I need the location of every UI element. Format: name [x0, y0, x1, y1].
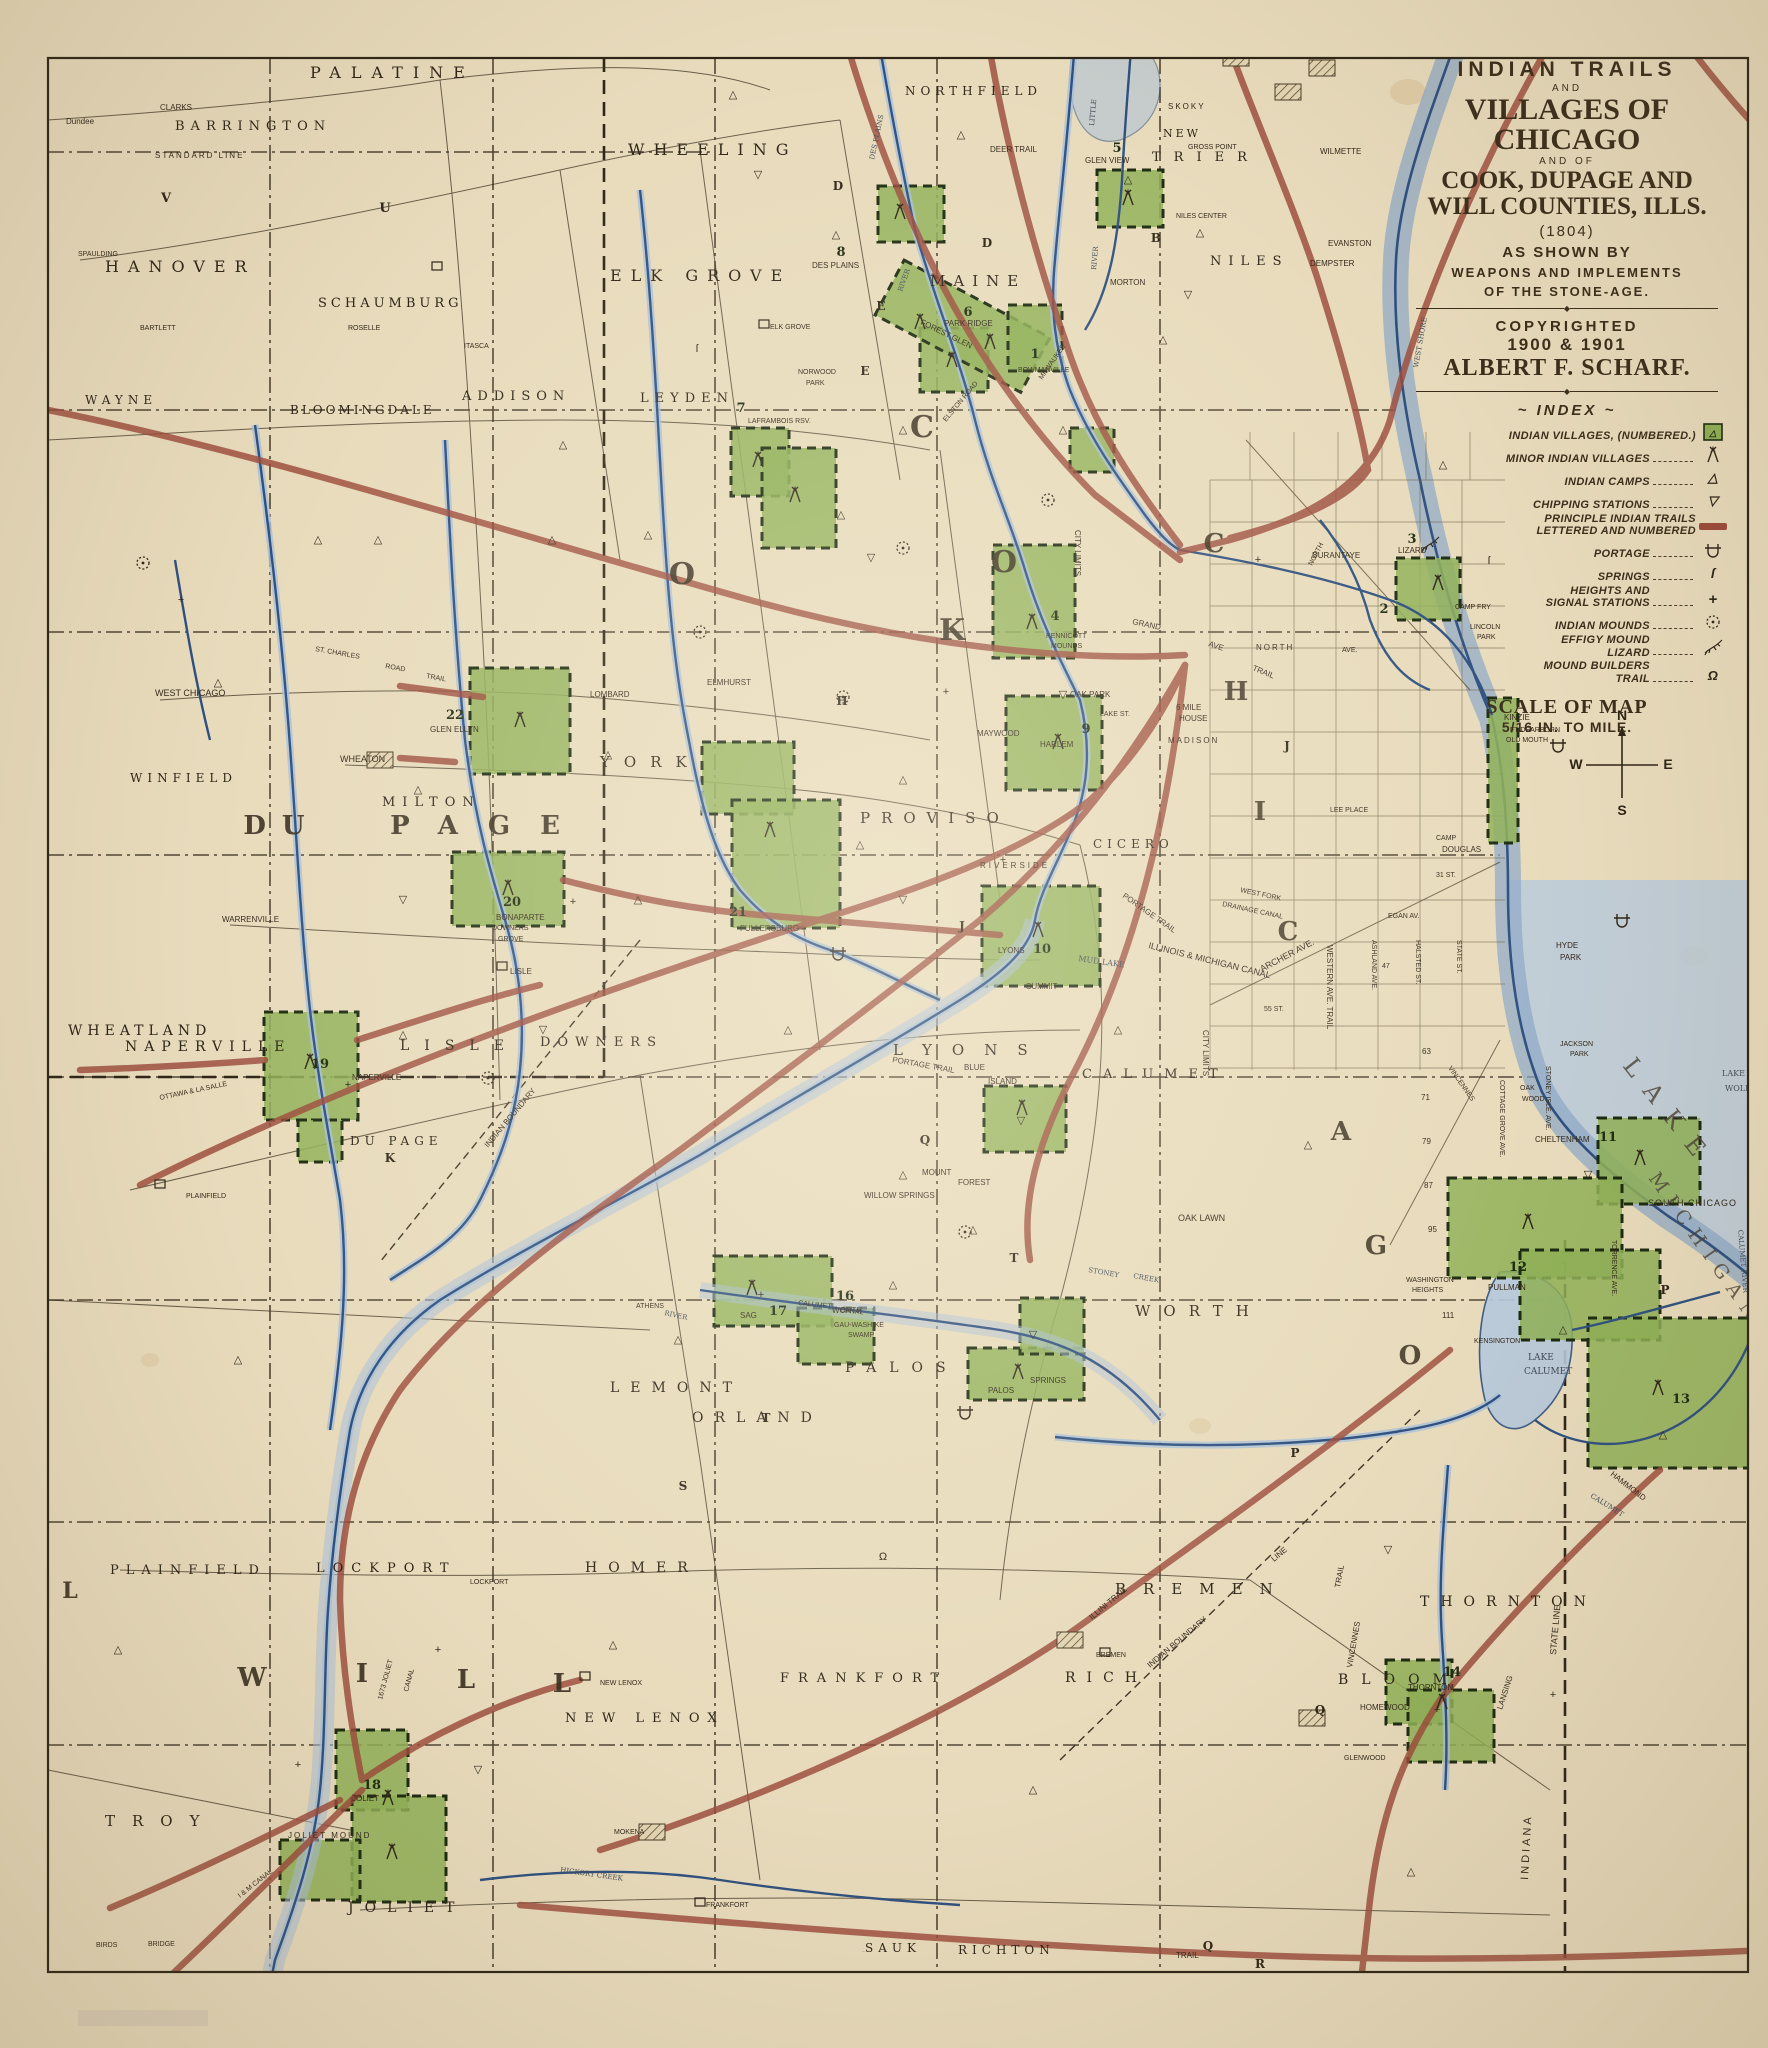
index-leader [1653, 484, 1693, 485]
symbol-h-icon: + [1255, 554, 1261, 566]
index-item-label: MINOR INDIAN VILLAGES [1506, 453, 1650, 466]
map-label: RICHTON [958, 1943, 1055, 1957]
map-label: 79 [1422, 1137, 1431, 1146]
index-item: MOUND BUILDERSTRAILΩ [1404, 660, 1730, 685]
map-label: LOMBARD [590, 690, 630, 699]
map-label: LISLE [400, 1038, 519, 1054]
map-label: L [553, 1669, 571, 1699]
map-label: NAPERVILLE [352, 1073, 401, 1082]
map-label: NEW LENOX [600, 1680, 642, 1687]
map-label: L [457, 1665, 475, 1695]
map-label: FULLERSBURG [740, 924, 799, 933]
index-item-label: PORTAGE [1594, 548, 1650, 561]
index-symbol: Ω [1696, 664, 1730, 686]
map-label: STANDARD LINE [155, 151, 244, 160]
map-label: PROVISO [860, 809, 1010, 827]
index-item-label: MOUND BUILDERSTRAIL [1544, 660, 1650, 685]
map-label: O [669, 557, 695, 592]
map-label: STATE LINE [1548, 1604, 1562, 1655]
map-label: S [679, 1479, 688, 1493]
map-label: 1 [1030, 347, 1039, 362]
map-label: OAK LAWN [1178, 1213, 1225, 1223]
map-label: WHEELING [628, 140, 797, 159]
map-label: GROVE [498, 936, 524, 943]
map-label: LOCKPORT [316, 1561, 457, 1576]
map-label: 22 [446, 708, 464, 723]
map-label: 18 [363, 1778, 381, 1793]
map-label: 17 [769, 1304, 787, 1319]
symbol-p-icon: ▽ [1059, 689, 1068, 701]
indian-village-glen-ellyn-22 [470, 668, 570, 774]
map-label: ELMHURST [707, 678, 751, 687]
map-label: Dundee [66, 117, 95, 126]
village-area [470, 668, 570, 774]
map-label: LEE PLACE [1330, 807, 1368, 814]
skokie-marsh [1070, 34, 1160, 142]
map-label: BREMEN [1115, 1580, 1290, 1598]
map-label: LANSING [1495, 1674, 1514, 1710]
scale-title: SCALE OF MAP [1398, 696, 1736, 719]
map-label: LINE [1270, 1545, 1289, 1563]
village-area [352, 1796, 446, 1902]
index-item: EFFIGY MOUNDLIZARD [1404, 634, 1730, 659]
symbol-p-icon: ▽ [1384, 1544, 1393, 1556]
symbol-c-icon: △ [644, 529, 653, 541]
symbol-m-icon [1042, 494, 1054, 506]
map-label: 31 ST. [1436, 872, 1456, 879]
map-label: OTTAWA & LA SALLE [159, 1081, 228, 1102]
map-label: BLOOMINGDALE [290, 403, 435, 417]
index-symbol [1696, 539, 1730, 561]
map-label: ROSELLE [348, 325, 381, 332]
symbol-c-icon: △ [1559, 1324, 1568, 1336]
map-label: PAGE [390, 811, 590, 841]
symbol-h-icon: + [178, 594, 184, 606]
map-label: WILMETTE [1320, 147, 1361, 156]
map-label: PLAINFIELD [110, 1563, 266, 1578]
map-label: A [1330, 1117, 1352, 1147]
index-item: CHIPPING STATIONS▽ [1404, 490, 1730, 512]
map-label: SWAMP [848, 1332, 875, 1339]
symbol-p-icon: ▽ [474, 1764, 483, 1776]
symbol-s-icon: ſ [696, 343, 699, 355]
map-label: BARRINGTON [175, 119, 331, 134]
map-label: TRAIL [426, 673, 447, 683]
map-label: LYONS [998, 946, 1025, 955]
map-label: OLD MOUTH [1506, 737, 1548, 744]
map-label: 19 [311, 1057, 329, 1072]
symbol-c-icon: △ [1114, 1024, 1123, 1036]
map-label: HARLEM [1040, 740, 1074, 749]
map-label: TROY [105, 1812, 217, 1830]
map-label: E [876, 299, 885, 313]
map-label: D [982, 236, 992, 250]
symbol-c-icon: △ [1124, 174, 1133, 186]
map-label: FRANKFORT [706, 1902, 749, 1909]
symbol-c-icon: △ [957, 129, 966, 141]
map-label: GROSS POINT [1188, 144, 1237, 151]
map-label: ST. CHARLES [315, 646, 361, 661]
map-label: HOUSE [1179, 714, 1207, 723]
chip-icon: ▽ [1708, 493, 1721, 508]
copyright-line: COPYRIGHTED [1398, 318, 1736, 335]
map-label: LAKE ST. [1100, 711, 1130, 718]
map-label: CAMP [1436, 835, 1457, 842]
map-label: MAINE [930, 272, 1026, 290]
map-label: C [1278, 917, 1299, 947]
map-label: WHEATLAND [68, 1023, 211, 1039]
map-label: MOUNT [922, 1168, 951, 1177]
map-label: BREMEN [1096, 1652, 1126, 1659]
map-label: KENSINGTON [1474, 1338, 1520, 1345]
map-label: CITY LIMITS [1073, 530, 1082, 576]
title-block: INDIAN TRAILS AND VILLAGES OF CHICAGO AN… [1398, 58, 1736, 735]
symbol-p-icon: ▽ [899, 894, 908, 906]
symbol-c-icon: △ [729, 89, 738, 101]
map-label: 10 [1033, 942, 1051, 957]
map-label: RICH [1065, 1670, 1148, 1686]
map-label: PULLMAN [1488, 1283, 1526, 1292]
symbol-p-icon: ▽ [1584, 1169, 1593, 1181]
map-label: CALUMET [1524, 1367, 1572, 1377]
symbol-c-icon: △ [609, 1639, 618, 1651]
symbol-c-icon: △ [1196, 227, 1205, 239]
map-label: BARTLETT [140, 325, 176, 332]
map-label: DEMPSTER [1310, 259, 1355, 268]
map-label: MOUNDS [1051, 643, 1082, 650]
symbol-c-icon: △ [559, 439, 568, 451]
map-label: ASHLAND AVE. [1370, 940, 1377, 990]
map-label: JOLIET [352, 1794, 379, 1803]
map-label: JOLIET MOUND [288, 1831, 371, 1840]
index-symbol: ▽ [1696, 490, 1730, 512]
map-label: STONEY ISLE. AVE. [1544, 1066, 1551, 1131]
map-label: CANAL [403, 1668, 416, 1692]
symbol-m-icon [137, 557, 149, 569]
index-symbol [1696, 611, 1730, 633]
map-label: INDIANA [1519, 1814, 1534, 1880]
index-leader [1653, 605, 1693, 606]
map-label: LAFRAMBOIS RSV. [748, 418, 811, 425]
index-symbol: △ [1696, 421, 1730, 443]
divider: ◆ [1416, 387, 1718, 396]
map-label: SKOKY [1168, 102, 1206, 111]
map-label: HANOVER [105, 257, 256, 276]
map-label: 55 ST. [1264, 1006, 1284, 1013]
map-label: JACKSON [1560, 1041, 1593, 1048]
map-label: LYONS [893, 1041, 1048, 1059]
map-label: NILES [1210, 254, 1289, 269]
symbol-c-icon: △ [1029, 1784, 1038, 1796]
map-label: ISLAND [988, 1077, 1017, 1086]
map-label: NORWOOD [798, 369, 836, 376]
index-symbol: + [1696, 588, 1730, 610]
index-item: MINOR INDIAN VILLAGES [1404, 444, 1730, 466]
map-label: COTTAGE GROVE AVE. [1498, 1080, 1505, 1158]
index-item-label: SPRINGS [1598, 571, 1650, 584]
symbol-o-icon: Ω [879, 1551, 887, 1563]
symbol-c-icon: △ [969, 1224, 978, 1236]
symbol-c-icon: △ [889, 1279, 898, 1291]
map-label: 2 [1379, 602, 1388, 617]
map-label: Q [1203, 1939, 1213, 1953]
symbol-h-icon: + [943, 686, 949, 698]
map-label: DU PAGE [350, 1134, 443, 1148]
map-label: NEW [1163, 127, 1201, 140]
symbol-c-icon: △ [1659, 1429, 1668, 1441]
map-label: EVANSTON [1328, 239, 1371, 248]
map-label: W [236, 1663, 267, 1693]
index-legend: INDIAN VILLAGES, (NUMBERED.)△MINOR INDIA… [1398, 421, 1736, 686]
map-label: PARK RIDGE [944, 319, 993, 328]
map-label: 5 [1112, 141, 1121, 156]
map-label: ATHENS [636, 1303, 664, 1310]
map-label: WOOD [1522, 1096, 1545, 1103]
map-label: DU [243, 811, 320, 841]
map-label: CREEK [1133, 1272, 1161, 1285]
trailbar-icon [1699, 523, 1727, 530]
map-label: BIRDS [96, 1942, 118, 1949]
map-label: ELK GROVE [610, 266, 791, 285]
symbol-c-icon: △ [234, 1354, 243, 1366]
map-label: OAK PARK [1070, 690, 1111, 699]
symbol-c-icon: △ [899, 1169, 908, 1181]
map-label: LAKE [1722, 1069, 1745, 1078]
map-label: C [910, 410, 934, 445]
symbol-q-icon [957, 1406, 973, 1419]
map-label: H [836, 694, 847, 708]
map-label: I [1254, 797, 1266, 827]
map-label: MOKENA [614, 1829, 645, 1836]
map-page: △△△△△△△△△△△△△△△△△△△△△△△△△△△△△△△△△△△△▽▽▽▽… [0, 0, 1768, 2048]
map-label: AVE. [1342, 647, 1357, 654]
scale-value: 5/16 IN. TO MILE. [1398, 719, 1736, 735]
map-label: 20 [503, 895, 521, 910]
map-label: K [939, 613, 966, 648]
map-label: WARRENVILLE [222, 915, 279, 924]
map-label: WAYNE [85, 393, 157, 407]
index-leader [1653, 681, 1693, 682]
symbol-h-icon: + [345, 1079, 351, 1091]
symbol-c-icon: △ [856, 839, 865, 851]
map-label: MORTON [1110, 278, 1145, 287]
map-label: GAU-WASH-KE [834, 1322, 884, 1329]
map-label: MADISON [1168, 736, 1219, 745]
map-label: WINFIELD [130, 771, 237, 785]
map-label: DOUGLAS [1442, 845, 1481, 854]
map-label: WORTH [1135, 1302, 1262, 1320]
map-label: PLAINFIELD [186, 1193, 226, 1200]
map-label: 47 [1382, 963, 1390, 970]
map-label: INDIAN BOUNDARY [1146, 1614, 1209, 1669]
lizard-icon [1705, 640, 1722, 655]
symbol-c-icon: △ [837, 509, 846, 521]
map-label: SAG [740, 1311, 757, 1320]
map-label: J [1283, 739, 1290, 753]
symbol-d-icon [432, 262, 442, 270]
index-leader [1653, 628, 1693, 629]
map-label: 8 [836, 245, 845, 260]
symbol-h-icon: + [295, 1759, 301, 1771]
map-label: 9 [1081, 722, 1090, 737]
map-label: SPAULDING [78, 251, 118, 258]
symbol-c-icon: △ [784, 1024, 793, 1036]
map-label: ITASCA [464, 343, 489, 350]
map-label: CHELTENHAM [1535, 1135, 1590, 1144]
map-label: TRAIL [1333, 1564, 1346, 1588]
map-label: 71 [1421, 1093, 1430, 1102]
index-item-label: PRINCIPLE INDIAN TRAILSLETTERED AND NUMB… [1536, 513, 1696, 538]
map-label: CICERO [1093, 837, 1174, 851]
map-title-line: INDIAN TRAILS [1398, 58, 1736, 82]
map-label: PARK [1560, 953, 1582, 962]
map-label: WILLOW SPRINGS [864, 1191, 935, 1200]
map-label: HOMEWOOD [1360, 1703, 1410, 1712]
map-label: SPRINGS [1030, 1376, 1066, 1385]
map-label: L [62, 1578, 77, 1604]
map-label: EGAN AV. [1388, 913, 1420, 920]
map-label: TRIER [1152, 150, 1260, 165]
map-label: PARK [1570, 1051, 1589, 1058]
map-label: HYDE [1556, 941, 1578, 950]
map-label: 87 [1424, 1181, 1433, 1190]
map-label: GLENWOOD [1344, 1755, 1386, 1762]
index-item: INDIAN MOUNDS [1404, 611, 1730, 633]
index-symbol: △ [1696, 467, 1730, 489]
map-label: ILLINI TRAIL [1088, 1585, 1130, 1622]
map-label: B [1151, 231, 1161, 245]
map-label: VINCENNES [1345, 1621, 1362, 1669]
map-label: 6 MILE [1176, 703, 1201, 712]
symbol-h-icon: + [570, 896, 576, 908]
index-leader [1653, 461, 1693, 462]
map-label: WASHINGTON [1406, 1277, 1454, 1284]
index-item: INDIAN VILLAGES, (NUMBERED.)△ [1404, 421, 1730, 443]
symbol-h-icon: + [758, 1289, 764, 1301]
map-label: ELK GROVE [770, 324, 811, 331]
map-label: HOMER [585, 1560, 699, 1576]
map-label: H [1224, 677, 1249, 707]
map-label: YORK [599, 753, 701, 771]
map-label: INDIAN BOUNDARY [483, 1086, 538, 1149]
map-label: LEMONT [610, 1380, 743, 1396]
index-item: PORTAGE [1404, 539, 1730, 561]
symbol-p-icon: ▽ [399, 894, 408, 906]
index-symbol [1696, 444, 1730, 466]
map-label: 12 [1509, 1260, 1527, 1275]
map-label: FRANKFORT [780, 1671, 948, 1686]
map-label: NORTH [1256, 643, 1294, 652]
map-label: C [1204, 529, 1225, 559]
map-label: FOREST [958, 1178, 991, 1187]
map-label: P [1660, 1283, 1669, 1297]
map-label: GRAND [1132, 617, 1162, 632]
map-label: STONEY [1088, 1266, 1120, 1279]
indian-village-fullersburg-21 [702, 742, 840, 928]
map-label: JOLIET [346, 1900, 465, 1916]
map-label: PALOS [988, 1386, 1014, 1395]
map-label: MILTON [382, 795, 481, 810]
roads [48, 68, 1550, 1915]
symbol-c-icon: △ [899, 424, 908, 436]
spring-icon: ſ [1711, 565, 1717, 581]
symbol-c-icon: △ [1304, 1139, 1313, 1151]
map-label: THORNTON [1420, 1594, 1597, 1610]
village-icon: △ [1708, 428, 1716, 438]
map-label: 95 [1428, 1225, 1437, 1234]
map-label: Q [920, 1133, 930, 1147]
divider: ◆ [1416, 304, 1718, 313]
index-heading: ~ INDEX ~ [1398, 402, 1736, 419]
index-item-label: INDIAN CAMPS [1565, 476, 1650, 489]
symbol-c-icon: △ [634, 894, 643, 906]
map-label: TRAIL [1176, 1951, 1199, 1960]
map-label: GLEN VIEW [1085, 156, 1130, 165]
map-label: THORNTON [1408, 1683, 1453, 1692]
index-leader [1653, 507, 1693, 508]
index-leader [1653, 654, 1693, 655]
portage-icon [1705, 544, 1721, 557]
compass-e: E [1663, 756, 1672, 772]
mound-icon [1707, 616, 1719, 628]
map-label: R [1255, 1957, 1266, 1971]
map-label: NEW LENOX [565, 1711, 725, 1726]
map-label: PALATINE [310, 63, 475, 82]
map-label: 13 [1672, 1392, 1690, 1407]
index-item-label: EFFIGY MOUNDLIZARD [1561, 634, 1650, 659]
map-label: SCHAUMBURG [318, 296, 463, 311]
map-label: DRAINAGE CANAL [1222, 901, 1284, 921]
symbol-c-icon: △ [114, 1644, 123, 1656]
index-item: HEIGHTS ANDSIGNAL STATIONS+ [1404, 585, 1730, 610]
symbol-c-icon: △ [1159, 334, 1168, 346]
map-label: TRAIL [1251, 664, 1276, 681]
symbol-d-icon [695, 1898, 705, 1906]
map-label: PALOS [845, 1360, 959, 1376]
map-label: DOWNERS [492, 925, 529, 932]
map-label: VINCENNES [1446, 1065, 1475, 1103]
map-label: 14 [1443, 1665, 1461, 1680]
symbol-c-icon: △ [314, 534, 323, 546]
map-label: Q [1315, 1703, 1325, 1717]
map-label: P [1290, 1446, 1299, 1460]
map-label: GLEN ELLYN [430, 725, 479, 734]
compass-w: W [1569, 756, 1583, 772]
symbol-p-icon: ▽ [867, 552, 876, 564]
symbol-h-icon: + [435, 1644, 441, 1656]
index-item-label: HEIGHTS ANDSIGNAL STATIONS [1546, 585, 1650, 610]
map-label: ORLAND [692, 1410, 823, 1426]
map-label: 21 [729, 905, 747, 920]
map-label: V [160, 191, 172, 206]
map-label: K [385, 1151, 396, 1165]
map-label: T [762, 1411, 771, 1425]
map-label: 63 [1422, 1047, 1431, 1056]
symbol-p-icon: ▽ [1017, 1115, 1026, 1127]
symbol-c-icon: △ [548, 534, 557, 546]
map-label: D [833, 179, 843, 193]
symbol-x-icon [1309, 60, 1335, 76]
map-label: WEST CHICAGO [155, 688, 225, 698]
map-label: CITY LIMITS [1201, 1030, 1210, 1076]
map-label: CLARKS [160, 103, 192, 112]
map-label: LAKE [1528, 1353, 1554, 1363]
map-label: PARK [806, 380, 825, 387]
index-symbol [1696, 516, 1730, 538]
index-item: INDIAN CAMPS△ [1404, 467, 1730, 489]
map-label: ADDISON [461, 389, 570, 404]
map-label: ILLINOIS & MICHIGAN CANAL [1148, 940, 1272, 980]
